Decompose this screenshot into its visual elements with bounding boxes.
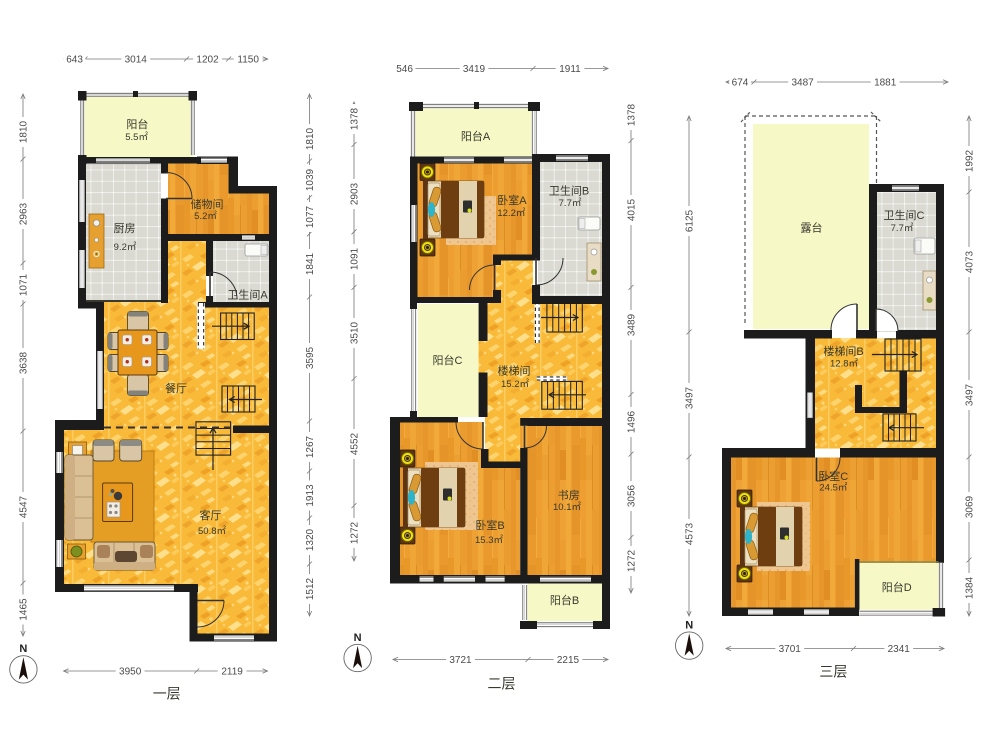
svg-text:阳台B: 阳台B bbox=[550, 593, 579, 607]
svg-text:1881: 1881 bbox=[874, 78, 897, 89]
svg-text:卧室C: 卧室C bbox=[818, 469, 848, 483]
svg-text:50.8㎡: 50.8㎡ bbox=[198, 526, 226, 537]
svg-text:阳台C: 阳台C bbox=[433, 353, 463, 367]
svg-text:1465: 1465 bbox=[19, 598, 30, 621]
svg-text:1039: 1039 bbox=[305, 168, 316, 191]
svg-text:卫生间C: 卫生间C bbox=[884, 208, 925, 222]
svg-text:5.5㎡: 5.5㎡ bbox=[125, 132, 148, 143]
svg-text:643: 643 bbox=[66, 55, 83, 66]
svg-text:1841: 1841 bbox=[305, 252, 316, 275]
svg-text:1202: 1202 bbox=[196, 55, 219, 66]
svg-text:12.2㎡: 12.2㎡ bbox=[497, 208, 525, 219]
svg-text:4573: 4573 bbox=[685, 522, 696, 545]
svg-text:15.3㎡: 15.3㎡ bbox=[475, 535, 503, 546]
svg-text:一层: 一层 bbox=[153, 686, 181, 702]
svg-text:2963: 2963 bbox=[19, 202, 30, 225]
svg-text:1077: 1077 bbox=[305, 205, 316, 228]
svg-text:1091: 1091 bbox=[350, 247, 361, 270]
svg-text:3595: 3595 bbox=[305, 346, 316, 369]
svg-text:2341: 2341 bbox=[888, 644, 911, 655]
svg-text:1378: 1378 bbox=[627, 103, 638, 126]
svg-text:1150: 1150 bbox=[237, 55, 259, 66]
svg-text:1378: 1378 bbox=[350, 107, 361, 130]
svg-text:3497: 3497 bbox=[685, 386, 696, 409]
svg-text:3014: 3014 bbox=[125, 55, 148, 66]
svg-text:3419: 3419 bbox=[463, 64, 486, 75]
svg-text:3638: 3638 bbox=[19, 351, 30, 374]
svg-text:3510: 3510 bbox=[350, 321, 361, 344]
svg-text:储物间: 储物间 bbox=[191, 197, 224, 211]
svg-text:二层: 二层 bbox=[488, 676, 516, 692]
svg-text:客厅: 客厅 bbox=[200, 508, 222, 522]
svg-text:N: N bbox=[19, 643, 27, 655]
svg-text:674: 674 bbox=[732, 78, 749, 89]
svg-text:1272: 1272 bbox=[350, 521, 361, 544]
svg-text:1384: 1384 bbox=[965, 576, 976, 599]
svg-text:楼梯间: 楼梯间 bbox=[498, 364, 531, 378]
svg-text:4073: 4073 bbox=[965, 250, 976, 273]
svg-text:1911: 1911 bbox=[559, 64, 581, 75]
svg-text:3950: 3950 bbox=[119, 667, 142, 678]
svg-text:3497: 3497 bbox=[965, 383, 976, 406]
svg-text:3069: 3069 bbox=[965, 495, 976, 518]
svg-text:1267: 1267 bbox=[305, 435, 316, 458]
svg-text:1272: 1272 bbox=[627, 549, 638, 572]
svg-text:书房: 书房 bbox=[558, 489, 580, 502]
svg-text:1071: 1071 bbox=[19, 273, 30, 296]
svg-text:阳台A: 阳台A bbox=[461, 129, 491, 143]
svg-text:卫生间A: 卫生间A bbox=[227, 288, 268, 302]
svg-text:4015: 4015 bbox=[627, 198, 638, 221]
svg-text:1496: 1496 bbox=[627, 410, 638, 433]
svg-text:N: N bbox=[354, 632, 362, 644]
svg-text:1913: 1913 bbox=[305, 484, 316, 507]
svg-text:N: N bbox=[685, 619, 693, 631]
svg-text:24.5㎡: 24.5㎡ bbox=[819, 483, 847, 494]
svg-text:10.1㎡: 10.1㎡ bbox=[553, 502, 581, 513]
svg-text:3721: 3721 bbox=[449, 655, 472, 666]
svg-text:3056: 3056 bbox=[627, 484, 638, 507]
svg-text:6125: 6125 bbox=[685, 209, 696, 232]
svg-text:阳台: 阳台 bbox=[126, 117, 148, 131]
svg-text:2903: 2903 bbox=[350, 182, 361, 205]
svg-text:1320: 1320 bbox=[305, 528, 316, 551]
svg-text:1810: 1810 bbox=[19, 120, 30, 143]
svg-text:2215: 2215 bbox=[557, 655, 580, 666]
svg-text:卧室A: 卧室A bbox=[497, 193, 527, 207]
svg-text:1512: 1512 bbox=[305, 577, 316, 600]
svg-text:三层: 三层 bbox=[819, 664, 847, 680]
svg-text:15.2㎡: 15.2㎡ bbox=[501, 379, 529, 390]
svg-text:1992: 1992 bbox=[965, 149, 976, 172]
svg-text:3487: 3487 bbox=[791, 78, 814, 89]
svg-text:3489: 3489 bbox=[627, 313, 638, 336]
svg-text:1810: 1810 bbox=[305, 127, 316, 150]
svg-text:2119: 2119 bbox=[221, 667, 243, 678]
svg-text:卧室B: 卧室B bbox=[475, 518, 504, 532]
svg-text:4547: 4547 bbox=[19, 495, 30, 518]
svg-text:阳台D: 阳台D bbox=[882, 580, 912, 594]
svg-text:7.7㎡: 7.7㎡ bbox=[559, 198, 582, 209]
svg-text:9.2㎡: 9.2㎡ bbox=[114, 242, 137, 253]
svg-text:楼梯间B: 楼梯间B bbox=[823, 344, 863, 358]
svg-text:3701: 3701 bbox=[779, 644, 802, 655]
svg-text:546: 546 bbox=[396, 64, 413, 75]
svg-text:4552: 4552 bbox=[350, 432, 361, 455]
svg-text:12.8㎡: 12.8㎡ bbox=[830, 359, 858, 370]
svg-text:5.2㎡: 5.2㎡ bbox=[194, 211, 217, 222]
svg-text:餐厅: 餐厅 bbox=[165, 381, 187, 395]
svg-text:7.7㎡: 7.7㎡ bbox=[891, 223, 914, 234]
svg-text:卫生间B: 卫生间B bbox=[549, 184, 589, 198]
svg-text:厨房: 厨房 bbox=[114, 222, 136, 235]
svg-text:露台: 露台 bbox=[801, 221, 823, 235]
